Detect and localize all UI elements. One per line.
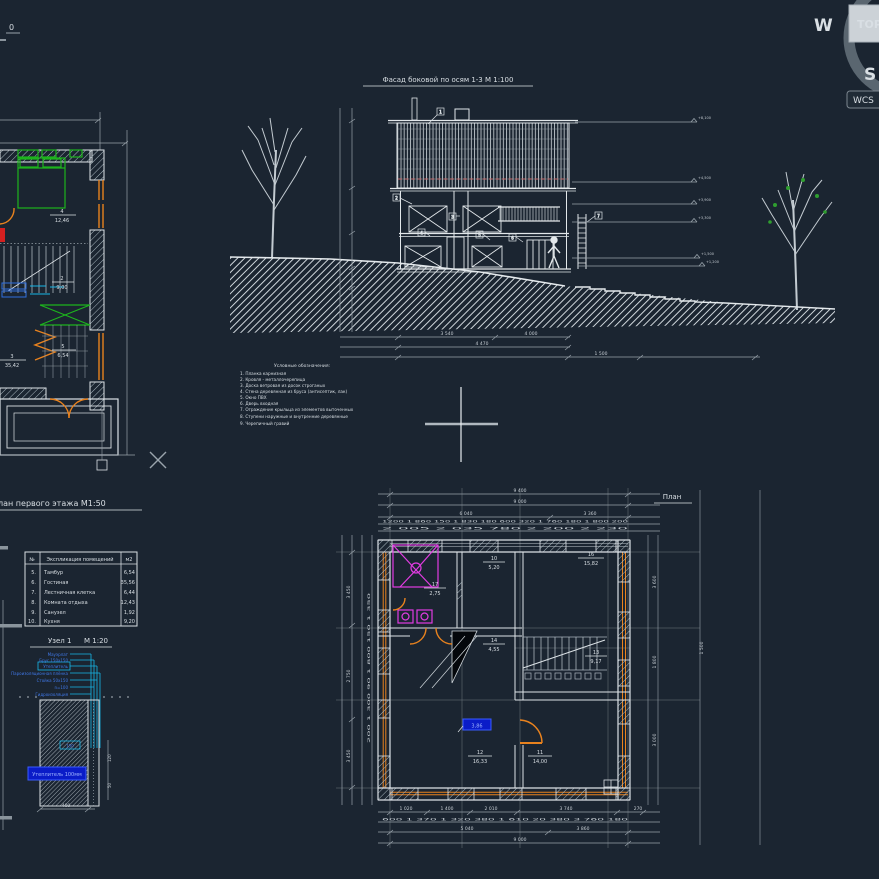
plan-staircase	[523, 637, 607, 679]
node-dim-s3: 50	[107, 782, 112, 788]
table-cell: 6,44	[124, 590, 135, 596]
room-label: 12 16,33	[468, 750, 492, 765]
balcony-railing	[498, 207, 560, 221]
callout-7: 7	[597, 214, 600, 219]
corner-label: 0	[0, 23, 20, 41]
svg-text:35,42: 35,42	[5, 363, 19, 369]
legend-item: 5. Окно ПВХ	[240, 395, 267, 400]
legend-item: 1. Планка карнизная	[240, 371, 287, 376]
node-detail: Узел 1 М 1:20 Мауэрлат Брус 150х150 Утеп…	[0, 600, 129, 830]
facade-bottom-dims: 3 540 4 000 4 470 1 500	[340, 331, 760, 360]
svg-text:15,82: 15,82	[584, 561, 598, 567]
table-cell: 8.	[31, 600, 36, 606]
roof	[397, 123, 569, 188]
legend-item: 2. Кровля - металлочерепица	[240, 377, 306, 382]
dim-chain: 200 1 300 90 1 800 150 1 350	[367, 593, 371, 743]
crosshair-cursor	[425, 387, 498, 462]
red-element	[0, 228, 5, 242]
table-cell: 12,43	[121, 600, 135, 606]
node-scale: М 1:20	[84, 637, 108, 645]
level-2: +3,900	[698, 198, 711, 202]
left-floor-plan: 4 12,46 2 9,00 5 6,54 3 35,42 План перво…	[0, 112, 142, 510]
node-dim-w: 400	[62, 803, 71, 809]
table-cell: 10.	[28, 619, 36, 625]
plan-title: План	[663, 493, 682, 501]
svg-text:4,55: 4,55	[488, 647, 499, 653]
svg-text:2: 2	[60, 276, 63, 282]
dim-chain: 600 1 370 1 320 380 1 610 20 380 3 760 1…	[382, 818, 628, 822]
room-label: 4 12,46	[50, 209, 76, 224]
dim: 2 010	[485, 806, 498, 812]
svg-text:5,20: 5,20	[488, 565, 499, 571]
node-dim-s2: 120	[107, 754, 112, 762]
tree-right	[762, 172, 832, 310]
dim: 1 020	[400, 806, 413, 812]
dim: 270	[634, 806, 643, 812]
room-label: 11 14,00	[528, 750, 552, 765]
dim: 9 000	[514, 499, 527, 505]
level-5: +1,200	[706, 260, 719, 264]
facade-drawing: Фасад боковой по осям 1-3 М 1:100	[230, 76, 835, 426]
svg-text:14: 14	[491, 638, 497, 644]
table-cell: Лестничная клетка	[44, 590, 95, 596]
callout-5: 5	[478, 233, 481, 238]
wcs-label[interactable]: WCS	[853, 96, 874, 106]
dim: 1 500	[699, 641, 705, 654]
table-cell: Санузел	[44, 610, 66, 616]
svg-text:16,33: 16,33	[473, 759, 487, 765]
svg-text:10: 10	[491, 556, 497, 562]
node-note: Мауэрлат	[48, 652, 69, 657]
table-cell: Кухня	[44, 619, 60, 625]
wall	[90, 230, 104, 330]
svg-text:5: 5	[61, 344, 64, 350]
lower-floor	[405, 237, 553, 269]
elevation-levels: +8,100 +4,500 +3,900 +3,300 +1,500 +1,20…	[572, 116, 719, 266]
facade-legend: Условные обозначения: 1. Планка карнизна…	[240, 363, 354, 426]
table-cell: Тамбур	[43, 570, 63, 576]
svg-text:9,17: 9,17	[590, 659, 601, 665]
dim-chain: 2 005 2 035 780 2 200 2 230	[382, 527, 628, 531]
terrace-doors	[50, 399, 88, 418]
svg-text:17: 17	[432, 582, 438, 588]
selected-plan-annotation-text[interactable]: 3,86	[471, 724, 482, 730]
svg-text:4: 4	[60, 209, 63, 215]
legend-item: 3. Доска ветровая из досок строганых	[240, 383, 326, 388]
table-cell: 7.	[31, 590, 36, 596]
dim: 2 750	[346, 669, 352, 682]
facade-dim-3: 4 470	[476, 341, 489, 347]
table-cell: 9.	[31, 610, 36, 616]
node-note: n=100	[54, 685, 68, 690]
room-label: 17 2,75	[424, 582, 446, 597]
wall	[0, 150, 92, 162]
chimney	[455, 109, 469, 120]
legend-item: 8. Ступени наружные и внутренние деревян…	[240, 414, 348, 419]
legend-item: 6. Дверь входная	[240, 401, 279, 406]
plan-top-dims: 9 400 9 000 6 040 3 360 1200 1 860 150 1…	[378, 488, 660, 531]
svg-text:9,00: 9,00	[56, 285, 67, 291]
table-cell: 6,54	[124, 570, 135, 576]
person-figure	[548, 237, 560, 268]
viewcube-west-label[interactable]: W	[814, 16, 833, 36]
room-label: 2 9,00	[52, 276, 74, 291]
cad-viewport: 0 W TOP S WCS Фасад боковой по осям 1-3 …	[0, 0, 879, 879]
legend-title: Условные обозначения:	[274, 363, 330, 369]
room-schedule-table: № Экспликация помещений м2 5. Тамбур 6,5…	[0, 546, 137, 626]
dim: 3 860	[577, 826, 590, 832]
legend-item: 9. Черепичный гравий	[240, 421, 290, 426]
table-cell: Комната отдыха	[44, 600, 88, 606]
upper-windows	[409, 206, 501, 232]
wall	[0, 388, 46, 399]
dim: 3 450	[346, 585, 352, 598]
left-plan-title: План первого этажа М1:50	[0, 499, 106, 508]
legend-item: 7. Ограждение крыльца из элементов выточ…	[240, 407, 354, 412]
dim: 3 740	[560, 806, 573, 812]
room-label: 10 5,20	[483, 556, 505, 571]
entry-door	[447, 237, 464, 269]
green-x-window	[40, 305, 90, 325]
dim: 5 040	[461, 826, 474, 832]
level-1: +4,500	[698, 176, 711, 180]
svg-text:11: 11	[537, 750, 543, 756]
room-label: 16 15,82	[578, 552, 604, 567]
callout-1: 1	[439, 110, 442, 115]
table-header-area: м2	[126, 557, 133, 563]
corner-label-text: 0	[9, 23, 14, 32]
dim: 1 800	[652, 655, 658, 668]
table-header-name: Экспликация помещений	[46, 556, 113, 563]
plan-bottom-dims: 1 020 1 400 2 010 3 740 270 600 1 370 1 …	[378, 806, 660, 846]
stair-void	[452, 631, 477, 683]
viewcube-top-label[interactable]: TOP	[857, 18, 879, 31]
svg-text:2,75: 2,75	[429, 591, 440, 597]
facade-dim-1: 3 540	[441, 331, 454, 337]
node-title: Узел 1	[48, 637, 71, 645]
table-cell: 9,20	[124, 619, 135, 625]
node-note: Стойка 50х150	[37, 678, 69, 683]
table-cell: 6.	[31, 580, 36, 586]
callout-4: 4	[420, 231, 423, 236]
facade-dim-2: 4 000	[525, 331, 538, 337]
dim: 3 000	[652, 733, 658, 746]
viewcube[interactable]: W TOP S WCS	[814, 0, 879, 108]
node-note: Брус 150х150	[39, 658, 68, 663]
facade-title: Фасад боковой по осям 1-3 М 1:100	[383, 76, 514, 84]
legend-item: 4. Стена деревянная из бруса (антисептик…	[240, 389, 348, 394]
table-header-num: №	[29, 557, 35, 563]
node-note: Гидроизоляция	[35, 692, 68, 697]
room-label: 13 9,17	[585, 650, 607, 665]
table-cell: 5.	[31, 570, 36, 576]
svg-text:3: 3	[10, 354, 13, 360]
wall	[90, 150, 104, 180]
dim-chain: 1200 1 860 150 1 830 180 600 320 1 760 1…	[382, 520, 628, 524]
viewcube-south-label[interactable]: S	[864, 65, 876, 85]
dim: 3 600	[652, 575, 658, 588]
level-4: +1,500	[701, 252, 714, 256]
plan-left-dims: 3 450 2 750 3 450 200 1 300 90 1 800 150…	[342, 535, 372, 805]
dim: 6 040	[460, 511, 473, 517]
callout-6: 6	[511, 236, 514, 241]
plan-right-dims: 3 600 1 800 3 000 1 500	[648, 490, 760, 845]
room-label: 14 4,55	[483, 638, 505, 653]
house-elevation	[388, 98, 586, 272]
selected-annotation-text[interactable]: Утеплитель 100мм	[32, 772, 82, 778]
flue	[412, 98, 417, 120]
svg-text:14,00: 14,00	[533, 759, 547, 765]
svg-text:6,54: 6,54	[57, 353, 68, 359]
table-cell: 35,56	[121, 580, 135, 586]
table-cell: Гостиная	[44, 580, 68, 586]
node-note: Пароизоляционная плёнка	[11, 671, 68, 676]
tree-left	[242, 118, 306, 258]
dim: 9 000	[514, 837, 527, 843]
wall-section	[40, 700, 88, 806]
svg-text:12: 12	[477, 750, 483, 756]
svg-text:16: 16	[588, 552, 594, 558]
table-cell: 1,92	[124, 610, 135, 616]
door-arc	[0, 208, 14, 224]
node-note: Утеплитель	[43, 664, 68, 669]
dim: 9 400	[514, 488, 527, 494]
level-0: +8,100	[698, 116, 711, 120]
callout-3: 3	[451, 215, 454, 220]
node-dim-box: 150	[66, 744, 74, 749]
cross-marker	[150, 452, 166, 468]
dots-row	[19, 696, 129, 698]
facade-dim-4: 1 500	[595, 351, 608, 357]
dim: 1 400	[441, 806, 454, 812]
dim: 3 450	[346, 749, 352, 762]
axis-marker	[97, 460, 107, 470]
bottom-floor-plan: План 9 400 9 000 6 040 3 360 1200 1 860 …	[336, 488, 760, 848]
callout-2: 2	[395, 196, 398, 201]
room-label: 3 35,42	[0, 354, 26, 369]
table-rows: 5. Тамбур 6,54 6. Гостиная 35,56 7. Лест…	[28, 570, 135, 625]
svg-text:13: 13	[593, 650, 599, 656]
svg-text:12,46: 12,46	[55, 218, 69, 224]
level-3: +3,300	[698, 216, 711, 220]
dim: 3 360	[584, 511, 597, 517]
